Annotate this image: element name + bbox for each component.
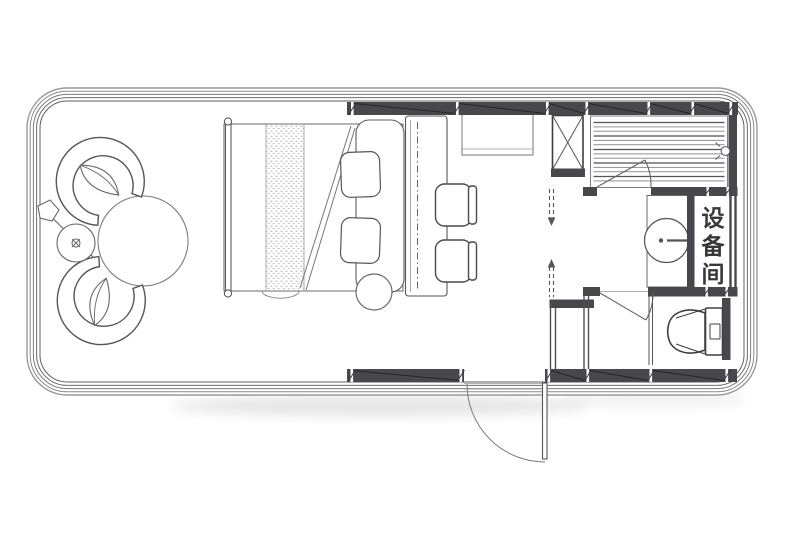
tv-shelf — [462, 112, 533, 155]
toilet — [668, 308, 723, 355]
top-wall-band — [347, 102, 738, 115]
pillow — [340, 217, 381, 263]
floor-plan-canvas: 设 备 间 — [0, 0, 800, 533]
pillow — [340, 151, 381, 197]
svg-text:备: 备 — [701, 233, 726, 259]
shower-room — [583, 115, 738, 196]
bottom-wall-band-left — [347, 369, 465, 382]
vanity — [645, 196, 691, 288]
svg-text:间: 间 — [702, 261, 725, 287]
bed — [224, 118, 404, 310]
equipment-room-label: 设 备 间 — [701, 205, 726, 287]
bedside-stool — [356, 274, 392, 310]
bottom-wall-band-right — [545, 369, 737, 382]
bed-blanket-texture — [266, 124, 304, 291]
door-leaf — [543, 383, 548, 459]
desk-chair — [436, 184, 477, 226]
floor-plan-drawing: 设 备 间 — [0, 0, 800, 533]
duvet — [356, 120, 404, 292]
drain — [659, 238, 663, 242]
desk-chair — [436, 240, 477, 282]
duct-column — [551, 116, 585, 178]
svg-text:设: 设 — [702, 205, 725, 231]
